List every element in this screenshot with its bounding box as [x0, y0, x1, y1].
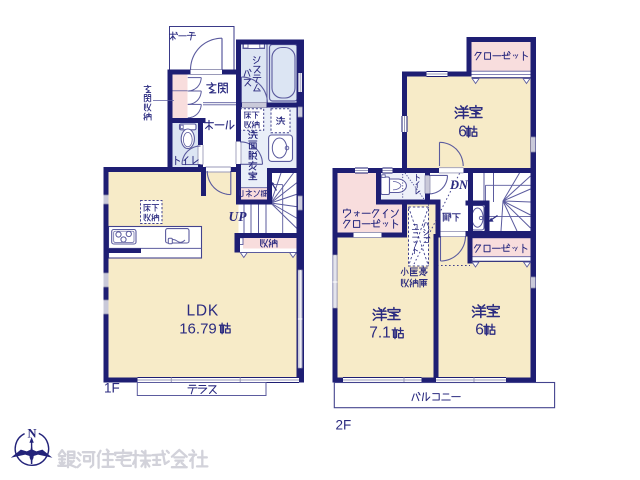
svg-text:6: 6 — [458, 124, 467, 141]
svg-text:LDK: LDK — [187, 303, 220, 320]
svg-text:6: 6 — [475, 322, 484, 339]
svg-text:7.1: 7.1 — [369, 325, 391, 342]
svg-text:2F: 2F — [336, 418, 352, 433]
svg-text:16.79: 16.79 — [179, 321, 217, 338]
svg-text:UP: UP — [229, 209, 248, 224]
svg-text:1F: 1F — [104, 381, 120, 396]
svg-text:DN: DN — [449, 178, 469, 192]
